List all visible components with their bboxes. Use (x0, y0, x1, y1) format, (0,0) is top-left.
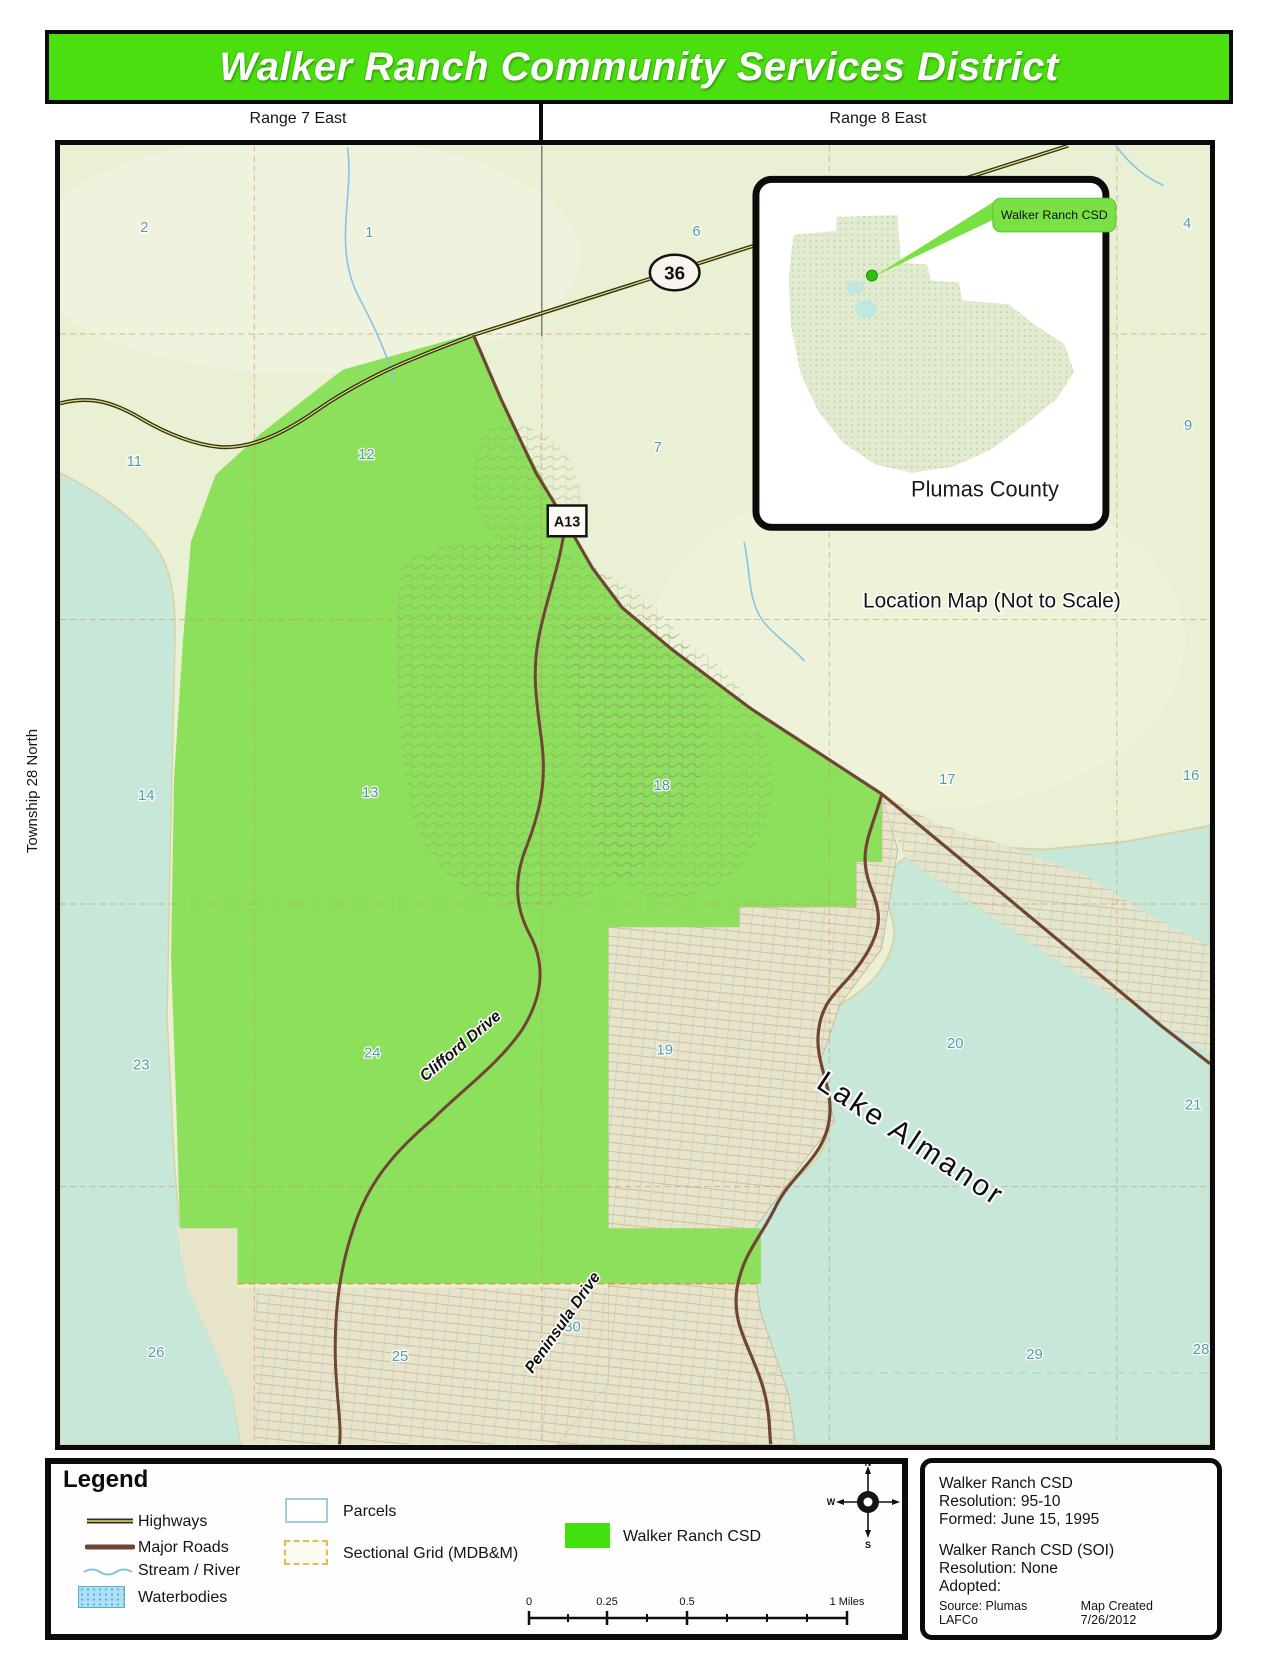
waterbodies-swatch (78, 1586, 125, 1608)
district-info-box: Walker Ranch CSD Resolution: 95-10 Forme… (920, 1458, 1222, 1640)
section-number: 9 (1184, 418, 1192, 434)
section-number: 28 (1193, 1342, 1210, 1358)
section-number: 11 (127, 454, 142, 470)
sectional-grid-swatch (284, 1540, 328, 1565)
callout-label: Walker Ranch CSD (1001, 208, 1108, 222)
section-number: 7 (654, 440, 662, 456)
info-line: Resolution: 95-10 (939, 1493, 1203, 1511)
inset-lake (855, 300, 877, 318)
district-location-dot (866, 270, 877, 281)
legend-title: Legend (63, 1466, 148, 1494)
legend-label-csd: Walker Ranch CSD (623, 1528, 761, 1546)
compass-n: N (865, 1458, 872, 1468)
legend-label-major-roads: Major Roads (138, 1539, 229, 1557)
compass-s: S (865, 1540, 871, 1550)
a13-marker: A13 (548, 506, 587, 537)
township-label: Township 28 North (24, 711, 42, 871)
compass-rose-icon: N S W E (826, 1458, 910, 1550)
section-number: 24 (364, 1046, 381, 1062)
info-line: Resolution: None (939, 1560, 1203, 1578)
stream-symbol (82, 1564, 138, 1578)
legend-label-stream: Stream / River (138, 1562, 240, 1580)
section-number: 26 (148, 1345, 165, 1361)
scale-tick-1mile: 1 Miles (830, 1596, 865, 1608)
county-label: Plumas County (911, 477, 1059, 502)
page-title: Walker Ranch Community Services District (219, 45, 1059, 90)
csd-swatch (565, 1523, 610, 1548)
highways-symbol (85, 1514, 135, 1528)
legend-label-parcels: Parcels (343, 1503, 396, 1521)
section-number: 21 (1185, 1097, 1202, 1113)
compass-w: W (827, 1497, 836, 1507)
legend-label-highways: Highways (138, 1513, 207, 1531)
info-line: Adopted: (939, 1578, 1203, 1596)
section-number: 25 (392, 1349, 409, 1365)
scale-tick-025: 0.25 (596, 1596, 617, 1608)
info-line: Walker Ranch CSD (SOI) (939, 1542, 1203, 1560)
section-number: 6 (692, 224, 700, 240)
info-line-blank (939, 1529, 1203, 1542)
title-bar: Walker Ranch Community Services District (45, 30, 1233, 104)
legend-label-sectional-grid: Sectional Grid (MDB&M) (343, 1545, 518, 1563)
inset-location-map: Walker Ranch CSD Plumas County (756, 179, 1116, 527)
range-8-east-label: Range 8 East (758, 110, 998, 128)
created-date: Map Created 7/26/2012 (1081, 1599, 1203, 1627)
legend-label-waterbodies: Waterbodies (138, 1589, 227, 1607)
section-number: 2 (140, 220, 148, 236)
major-roads-symbol (85, 1540, 135, 1554)
section-number: 19 (656, 1043, 673, 1059)
scale-bar: 0 0.25 0.5 1 Miles (505, 1592, 885, 1636)
section-number: 29 (1026, 1347, 1043, 1363)
highway-36-shield: 36 (650, 255, 700, 291)
compass-e: E (902, 1497, 908, 1507)
section-number: 13 (362, 785, 379, 801)
location-map-caption: Location Map (Not to Scale) (863, 590, 1121, 613)
map-source-line: Source: Plumas LAFCo Map Created 7/26/20… (939, 1599, 1203, 1627)
range-7-east-label: Range 7 East (178, 110, 418, 128)
inset-lake (846, 280, 864, 294)
map-canvas: 2 1 6 4 11 12 7 9 14 13 18 17 16 23 24 1… (60, 145, 1210, 1445)
scale-tick-0: 0 (526, 1596, 532, 1608)
section-number: 23 (133, 1058, 150, 1074)
info-line: Walker Ranch CSD (939, 1475, 1203, 1493)
section-number: 20 (947, 1036, 964, 1052)
source-credit: Source: Plumas LAFCo (939, 1599, 1061, 1627)
section-number: 16 (1183, 768, 1200, 784)
map-area: 2 1 6 4 11 12 7 9 14 13 18 17 16 23 24 1… (55, 140, 1215, 1450)
highway-36-shield-label: 36 (664, 262, 685, 283)
section-number: 17 (939, 772, 956, 788)
section-number: 14 (138, 788, 155, 804)
section-number: 1 (365, 225, 373, 241)
section-number: 12 (358, 447, 375, 463)
scale-tick-05: 0.5 (679, 1596, 694, 1608)
range-divider-line (539, 104, 543, 141)
section-number: 18 (654, 778, 671, 794)
section-number: 4 (1183, 216, 1191, 232)
a13-marker-label: A13 (554, 514, 580, 530)
info-line: Formed: June 15, 1995 (939, 1511, 1203, 1529)
parcels-swatch (285, 1498, 328, 1523)
